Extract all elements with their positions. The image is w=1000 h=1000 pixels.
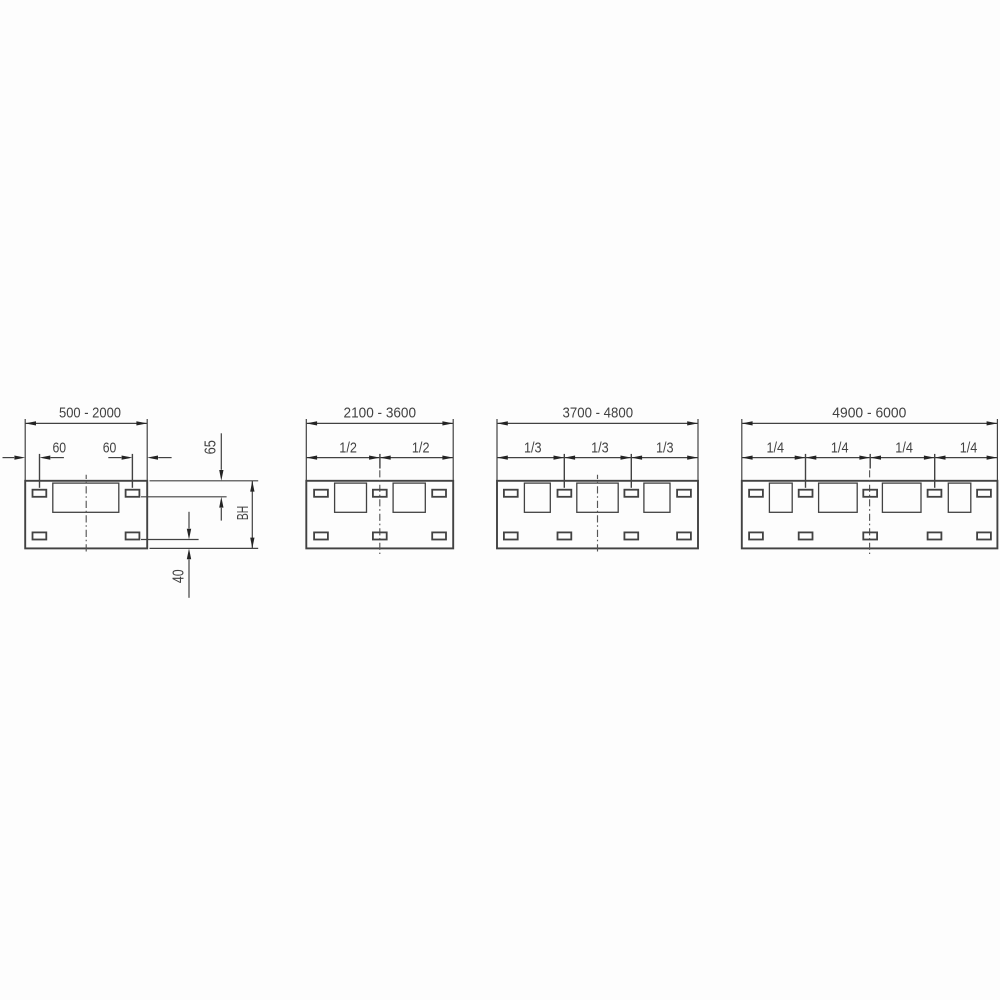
svg-text:1/4: 1/4: [895, 440, 913, 457]
svg-text:1/2: 1/2: [339, 440, 357, 457]
svg-text:40: 40: [170, 569, 187, 583]
svg-text:4900 - 6000: 4900 - 6000: [832, 404, 906, 421]
svg-text:500 - 2000: 500 - 2000: [59, 404, 121, 421]
svg-text:1/4: 1/4: [831, 440, 849, 457]
svg-text:1/2: 1/2: [412, 440, 430, 457]
svg-text:2100 - 3600: 2100 - 3600: [344, 404, 417, 421]
svg-text:60: 60: [53, 440, 67, 457]
svg-text:1/4: 1/4: [767, 440, 785, 457]
svg-text:1/3: 1/3: [524, 440, 542, 457]
svg-text:BH: BH: [235, 506, 252, 520]
svg-text:60: 60: [103, 440, 117, 457]
svg-text:1/4: 1/4: [960, 440, 978, 457]
svg-text:3700 - 4800: 3700 - 4800: [563, 404, 634, 421]
svg-text:1/3: 1/3: [656, 440, 674, 457]
svg-text:65: 65: [203, 440, 220, 455]
svg-text:1/3: 1/3: [591, 440, 609, 457]
